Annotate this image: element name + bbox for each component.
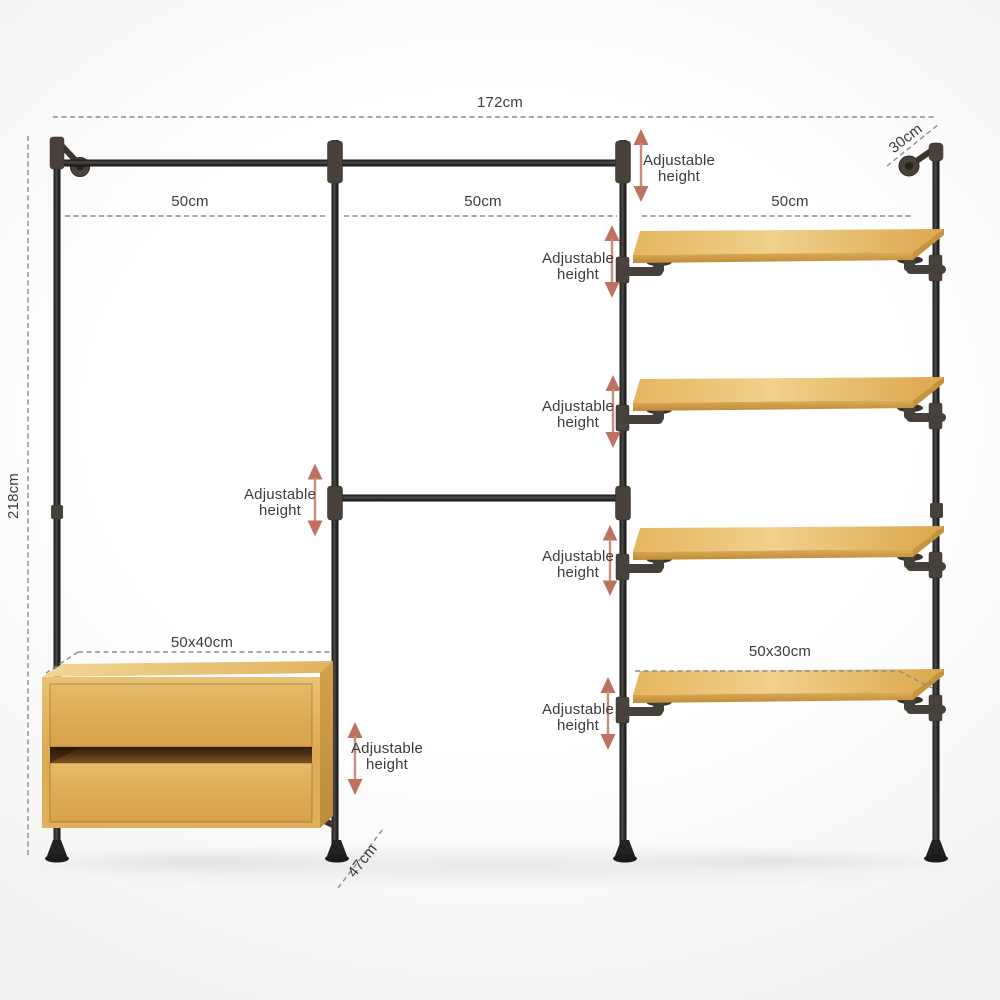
drawer-unit	[42, 661, 334, 829]
drawer-top-size-label: 50x40cm	[152, 635, 252, 651]
section-3-width-label: 50cm	[750, 194, 830, 210]
adjustable-height-label-shelf-3: Adjustable height	[523, 549, 633, 581]
total-height-label: 218cm	[6, 473, 22, 519]
adjustable-height-label-mid-rail: Adjustable height	[225, 487, 335, 519]
adjustable-height-label-shelf-1: Adjustable height	[523, 251, 633, 283]
shelf-1	[616, 229, 946, 283]
floor-shadow	[20, 840, 980, 892]
product-dimension-diagram: 172cm 218cm 30cm 47cm 50cm 50cm 50cm 50x…	[0, 0, 1000, 1000]
adjustable-height-label-top-rail: Adjustable height	[624, 153, 734, 185]
top-rail	[50, 137, 631, 519]
vertical-pipe-4	[924, 143, 948, 863]
adjustable-height-label-drawer: Adjustable height	[332, 741, 442, 773]
wall-bracket-right	[899, 151, 931, 176]
section-2-width-label: 50cm	[443, 194, 523, 210]
mid-rail	[328, 486, 631, 520]
total-width-label: 172cm	[460, 95, 540, 111]
adjustable-height-label-shelf-2: Adjustable height	[523, 399, 633, 431]
shelf-4	[616, 669, 946, 723]
shelf-size-label: 50x30cm	[730, 644, 830, 660]
adjustable-height-label-shelf-4: Adjustable height	[523, 702, 633, 734]
shelf-2	[616, 377, 946, 431]
shelf-3	[616, 526, 946, 580]
furniture-illustration	[0, 0, 1000, 1000]
section-1-width-label: 50cm	[150, 194, 230, 210]
